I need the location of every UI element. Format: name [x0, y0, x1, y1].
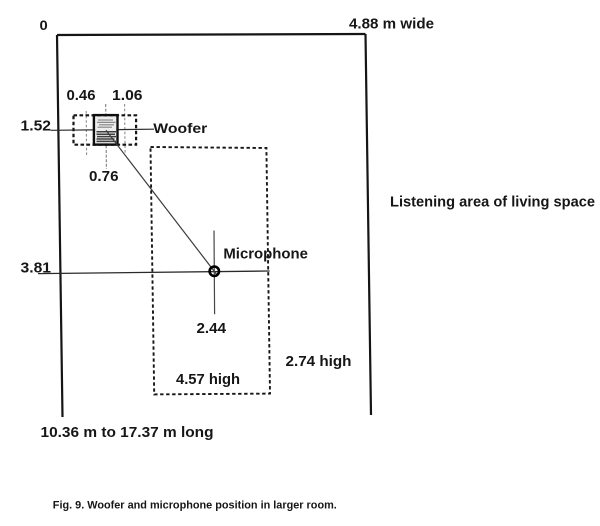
svg-text:4.88 m wide: 4.88 m wide	[349, 16, 434, 33]
svg-text:0.76: 0.76	[89, 168, 119, 185]
svg-text:0: 0	[40, 18, 48, 33]
svg-text:1.52: 1.52	[21, 118, 52, 135]
svg-text:2.74 high: 2.74 high	[286, 353, 352, 370]
svg-text:Microphone: Microphone	[223, 246, 308, 262]
svg-text:1.06: 1.06	[112, 87, 143, 104]
svg-text:Woofer: Woofer	[153, 121, 208, 136]
svg-text:2.44: 2.44	[197, 320, 227, 337]
svg-text:10.36 m to 17.37 m long: 10.36 m to 17.37 m long	[41, 424, 214, 441]
svg-text:4.57 high: 4.57 high	[176, 371, 240, 388]
svg-text:0.46: 0.46	[67, 87, 96, 104]
svg-text:Fig. 9. Woofer and microphone: Fig. 9. Woofer and microphone position i…	[53, 500, 337, 512]
svg-text:Listening area of living space: Listening area of living space	[390, 193, 595, 210]
